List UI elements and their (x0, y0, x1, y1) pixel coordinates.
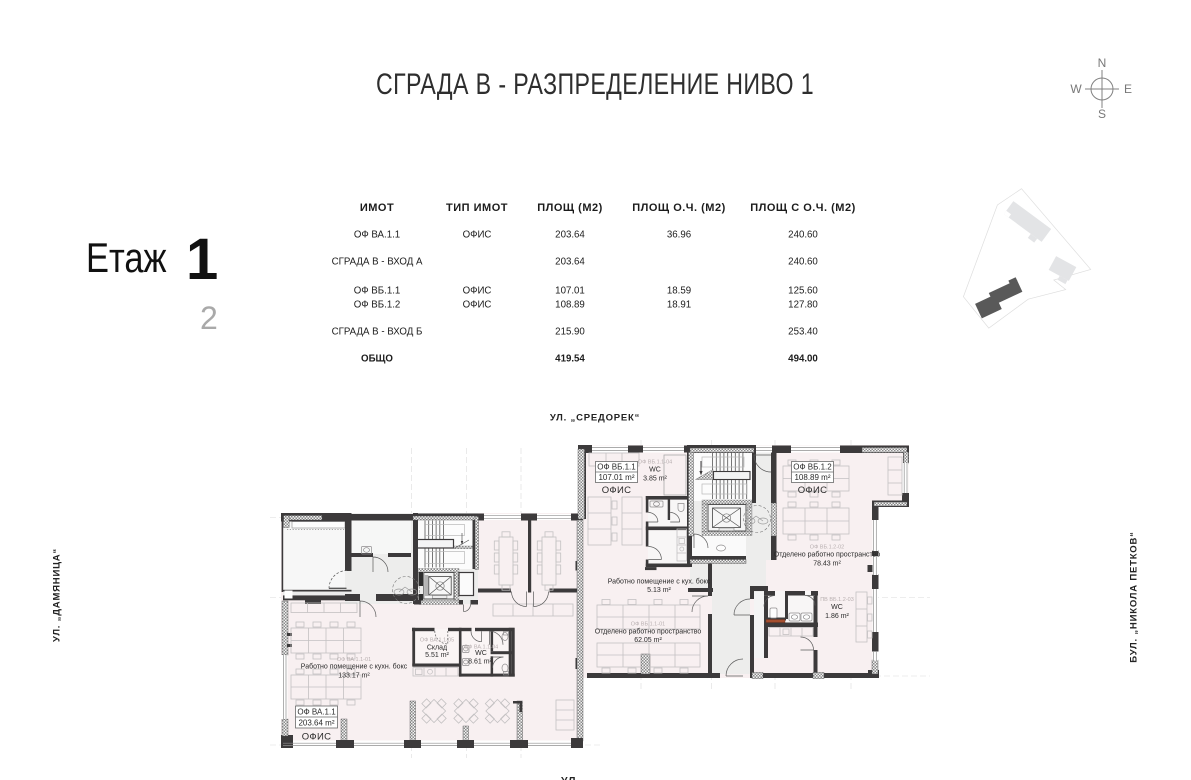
svg-text:ОФ ВБ.1.2-02: ОФ ВБ.1.2-02 (810, 545, 844, 551)
svg-text:78.43 m²: 78.43 m² (813, 561, 841, 568)
svg-text:ОФИС: ОФИС (302, 732, 332, 743)
svg-text:Работно помещение с кух. бокс: Работно помещение с кух. бокс (608, 578, 711, 586)
svg-text:108.89 m²: 108.89 m² (794, 473, 830, 482)
svg-text:ОФ ВА.1.1: ОФ ВА.1.1 (297, 708, 336, 717)
svg-text:WC: WC (475, 650, 487, 657)
svg-text:5.13 m²: 5.13 m² (647, 587, 671, 594)
svg-text:Склад: Склад (427, 645, 447, 652)
svg-text:ОФ ВА.1.1-04: ОФ ВА.1.1-04 (464, 645, 498, 651)
svg-text:133.17 m²: 133.17 m² (338, 673, 370, 680)
svg-text:62.05 m²: 62.05 m² (634, 637, 662, 644)
svg-text:Отделено работно пространство: Отделено работно пространство (595, 628, 702, 636)
svg-text:WC: WC (831, 604, 843, 611)
svg-text:ПВ ВБ.1.2-03: ПВ ВБ.1.2-03 (820, 597, 854, 603)
svg-text:WC: WC (649, 467, 661, 474)
svg-text:5.51 m²: 5.51 m² (425, 652, 449, 659)
svg-text:ОФ ВБ.1.1: ОФ ВБ.1.1 (597, 463, 636, 472)
svg-text:ОФ ВА.1.1-05: ОФ ВА.1.1-05 (420, 638, 454, 644)
svg-text:203.64 m²: 203.64 m² (298, 719, 334, 728)
svg-text:Работно помещение с кухн. бокс: Работно помещение с кухн. бокс (301, 663, 408, 671)
svg-text:Отделено работно пространство: Отделено работно пространство (774, 551, 881, 559)
svg-text:ОФИС: ОФИС (602, 485, 632, 496)
svg-text:ОФ ВА.1.1-01: ОФ ВА.1.1-01 (337, 657, 371, 663)
svg-text:ОФ ВБ.1.2: ОФ ВБ.1.2 (793, 463, 832, 472)
svg-text:8.61 m²: 8.61 m² (468, 659, 492, 666)
svg-text:ОФ ВБ.1.1-04: ОФ ВБ.1.1-04 (638, 460, 672, 466)
svg-text:1.86 m²: 1.86 m² (825, 613, 849, 620)
svg-text:ОФИС: ОФИС (798, 485, 828, 496)
svg-text:ОФ ВБ.1.1-01: ОФ ВБ.1.1-01 (631, 622, 665, 628)
svg-text:3.85 m²: 3.85 m² (643, 476, 667, 483)
svg-text:107.01 m²: 107.01 m² (598, 473, 634, 482)
